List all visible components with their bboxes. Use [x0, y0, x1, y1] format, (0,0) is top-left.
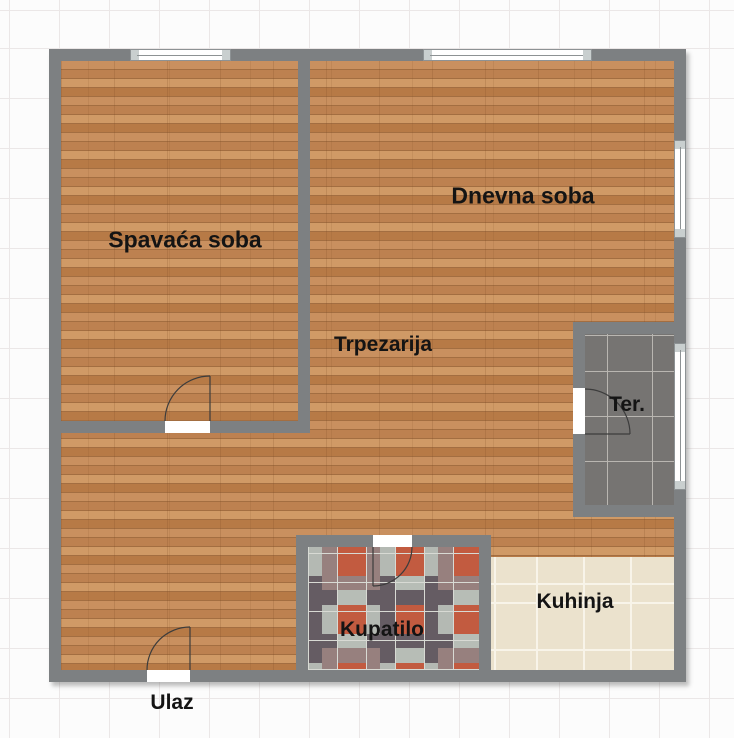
window-cap [583, 50, 591, 60]
terrace-window [674, 343, 686, 490]
room-label-spavaca-soba: Spavaća soba [108, 227, 261, 254]
entrance-door-opening [147, 670, 190, 682]
terrace-floor [585, 334, 674, 505]
window-mullion [430, 55, 585, 56]
living-room-right-window [674, 140, 686, 238]
window-mullion [680, 350, 681, 483]
room-label-dnevna-soba: Dnevna soba [451, 183, 594, 210]
terrace-door-opening [573, 388, 585, 434]
wall-bathroom-right [479, 547, 491, 670]
window-mullion [680, 147, 681, 231]
wall-bedroom-living-divider [298, 61, 310, 433]
room-label-terasa: Ter. [609, 393, 645, 417]
bedroom-window [130, 49, 231, 61]
room-label-ulaz: Ulaz [150, 691, 193, 715]
room-label-kupatilo: Kupatilo [340, 618, 424, 642]
outer-wall-left [49, 61, 61, 682]
living-room-top-window [423, 49, 592, 61]
wall-terrace-bottom [573, 505, 674, 517]
wall-bathroom-left [296, 547, 308, 670]
bathroom-floor [308, 547, 479, 670]
room-label-kuhinja: Kuhinja [537, 590, 614, 614]
window-mullion [137, 55, 224, 56]
window-cap [222, 50, 230, 60]
window-cap [675, 481, 685, 489]
bathroom-door-opening [373, 535, 412, 547]
bedroom-door-opening [165, 421, 210, 433]
wall-terrace-top [573, 322, 674, 334]
room-label-trpezarija: Trpezarija [334, 333, 432, 357]
outer-wall-bottom [49, 670, 686, 682]
window-cap [675, 229, 685, 237]
